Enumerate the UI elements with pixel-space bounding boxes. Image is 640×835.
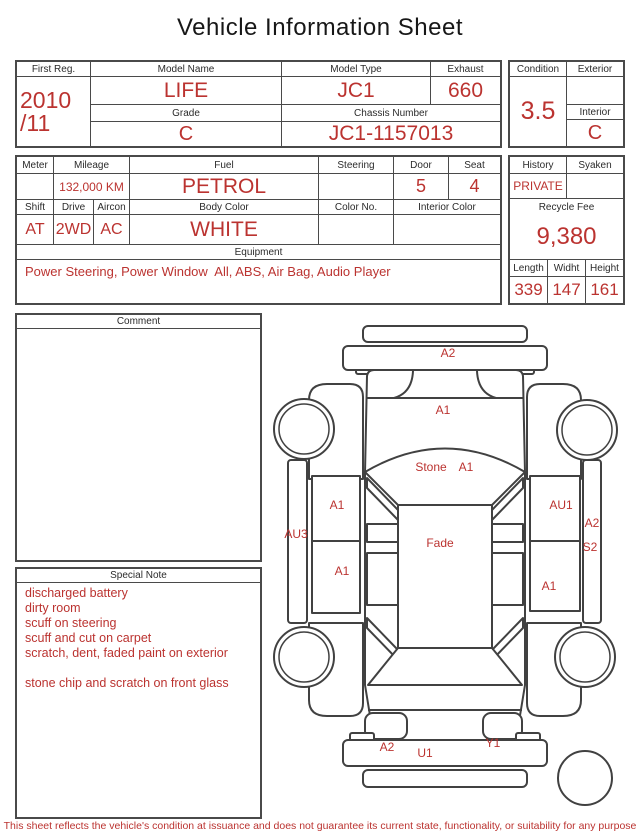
interior-value: C — [567, 120, 623, 146]
damage-marker-hood: A1 — [436, 403, 451, 417]
grade-label: Grade — [91, 105, 282, 122]
rear-lower-bar — [363, 770, 527, 787]
special-note-box: Special Note discharged battery dirty ro… — [15, 567, 262, 819]
model-type-label: Model Type — [282, 62, 431, 77]
fuel-value: PETROL — [130, 174, 319, 200]
mileage-value: 132,000 KM — [54, 174, 130, 200]
comment-box: Comment — [15, 313, 262, 562]
fuel-label: Fuel — [130, 157, 319, 174]
model-type-value: JC1 — [282, 77, 431, 105]
damage-marker-left-rear-door: A1 — [335, 564, 350, 578]
special-note-label: Special Note — [17, 569, 260, 583]
model-name-value: LIFE — [91, 77, 282, 105]
comment-label: Comment — [17, 315, 260, 329]
length-value: 339 — [510, 277, 548, 303]
damage-marker-rear-bumper-right: Y1 — [486, 736, 501, 750]
damage-marker-right-sill-upper: A2 — [585, 516, 600, 530]
exterior-value — [567, 77, 623, 105]
first-reg-month: /11 — [20, 112, 50, 135]
chassis-number-value: JC1-1157013 — [282, 122, 500, 146]
length-label: Length — [510, 260, 548, 277]
width-value: 147 — [548, 277, 586, 303]
damage-marker-windshield: A1 — [459, 460, 474, 474]
seat-value: 4 — [449, 174, 500, 200]
shift-value: AT — [17, 215, 54, 245]
damage-marker-left-front-door: A1 — [330, 498, 345, 512]
drive-value: 2WD — [54, 215, 94, 245]
front-left-wheel — [274, 399, 334, 459]
damage-marker-rear-bumper-left: A2 — [380, 740, 395, 754]
equipment-value: Power Steering, Power Window All, ABS, A… — [17, 260, 500, 303]
front-right-wheel — [557, 400, 617, 460]
damage-marker-right-front-door: AU1 — [549, 498, 573, 512]
condition-label: Condition — [510, 62, 567, 77]
recycle-fee-value: 9,380 — [510, 215, 623, 260]
rear-left-wheel — [274, 627, 334, 687]
damage-marker-right-rear-door: A1 — [542, 579, 557, 593]
interior-label: Interior — [567, 105, 623, 120]
rear-right-wheel — [555, 627, 615, 687]
fee-table: History Syaken PRIVATE Recycle Fee 9,380… — [508, 155, 625, 305]
page-title: Vehicle Information Sheet — [0, 14, 640, 42]
color-no-label: Color No. — [319, 200, 394, 215]
grade-value: C — [91, 122, 282, 146]
syaken-value — [567, 174, 623, 199]
first-reg-value: 2010 /11 — [17, 77, 91, 146]
first-reg-label: First Reg. — [17, 62, 91, 77]
height-value: 161 — [586, 277, 623, 303]
recycle-fee-label: Recycle Fee — [510, 199, 623, 215]
syaken-label: Syaken — [567, 157, 623, 174]
height-label: Height — [586, 260, 623, 277]
damage-marker-front-bumper: A2 — [441, 346, 456, 360]
right-rear-window — [492, 553, 523, 605]
mileage-label: Mileage — [54, 157, 130, 174]
body-color-value: WHITE — [130, 215, 319, 245]
model-name-label: Model Name — [91, 62, 282, 77]
rear-bumper — [343, 740, 547, 766]
special-note-lines: discharged battery dirty room scuff on s… — [25, 586, 256, 691]
color-no-value — [319, 215, 394, 245]
seat-label: Seat — [449, 157, 500, 174]
condition-table: Condition Exterior 3.5 Interior C — [508, 60, 625, 148]
interior-color-value — [394, 215, 500, 245]
meter-label: Meter — [17, 157, 54, 174]
aircon-label: Aircon — [94, 200, 130, 215]
door-label: Door — [394, 157, 449, 174]
identity-table: First Reg. Model Name Model Type Exhaust… — [15, 60, 502, 148]
steering-value — [319, 174, 394, 200]
left-sill-panel — [288, 460, 307, 623]
history-label: History — [510, 157, 567, 174]
left-rear-window — [367, 553, 398, 605]
footer-disclaimer: This sheet reflects the vehicle's condit… — [0, 820, 640, 832]
car-damage-diagram: A2A1StoneA1A1AU1AU3A2S2FadeA1A1A2U1Y1 — [270, 313, 635, 819]
equipment-label: Equipment — [17, 245, 500, 260]
spec-table: Meter Mileage Fuel Steering Door Seat 13… — [15, 155, 502, 305]
condition-value: 3.5 — [510, 77, 567, 146]
width-label: Widht — [548, 260, 586, 277]
damage-marker-windshield-stone: Stone — [415, 460, 447, 474]
drive-label: Drive — [54, 200, 94, 215]
door-value: 5 — [394, 174, 449, 200]
damage-marker-right-sill-lower: S2 — [583, 540, 598, 554]
interior-color-label: Interior Color — [394, 200, 500, 215]
steering-label: Steering — [319, 157, 394, 174]
exhaust-label: Exhaust — [431, 62, 500, 77]
exterior-label: Exterior — [567, 62, 623, 77]
aircon-value: AC — [94, 215, 130, 245]
history-value: PRIVATE — [510, 174, 567, 199]
shift-label: Shift — [17, 200, 54, 215]
meter-value — [17, 174, 54, 200]
left-front-window — [367, 524, 398, 542]
first-reg-year: 2010 — [20, 89, 71, 112]
chassis-number-label: Chassis Number — [282, 105, 500, 122]
damage-marker-left-sill: AU3 — [284, 527, 308, 541]
vehicle-information-sheet: Vehicle Information Sheet First Reg. Mod… — [0, 0, 640, 835]
right-rear-door-panel — [530, 541, 580, 611]
exhaust-value: 660 — [431, 77, 500, 105]
spare-tire — [558, 751, 612, 805]
front-grille-bar — [363, 326, 527, 342]
damage-marker-roof: Fade — [426, 536, 454, 550]
body-color-label: Body Color — [130, 200, 319, 215]
damage-marker-rear-bumper-center: U1 — [417, 746, 433, 760]
right-front-window — [492, 524, 523, 542]
